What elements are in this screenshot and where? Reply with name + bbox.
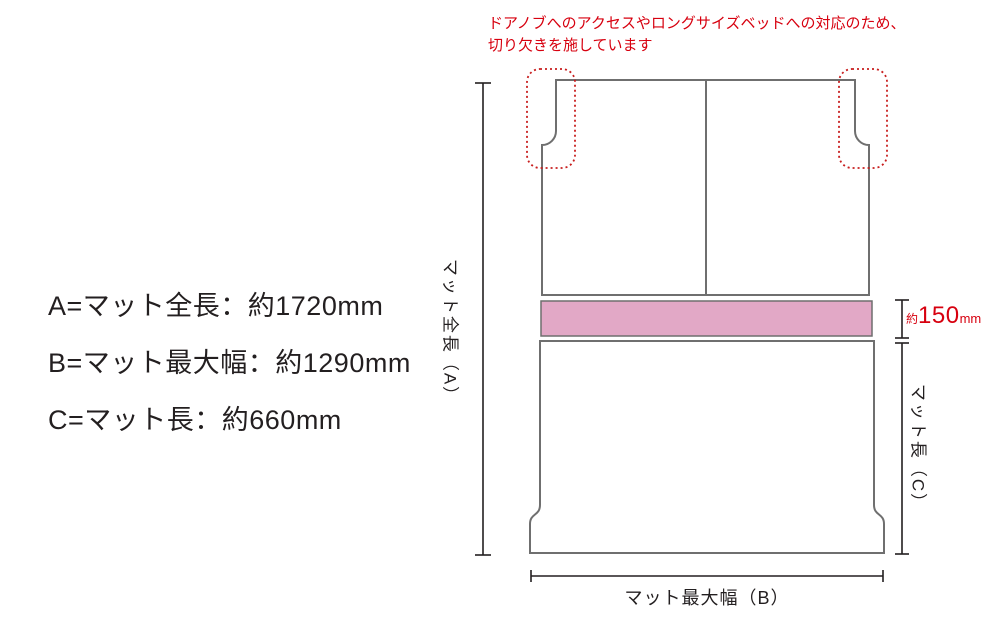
- label-total-length-a: マット全長（A）: [440, 259, 465, 405]
- gap-unit: mm: [960, 311, 982, 326]
- dimension-line-b: [531, 570, 883, 582]
- mat-bottom-section: [530, 341, 884, 553]
- mat-dimension-diagram: ドアノブへのアクセスやロングサイズベッドへの対応のため、 切り欠きを施しています…: [0, 0, 984, 633]
- mat-outline-drawing: [0, 0, 984, 633]
- gap-prefix: 約: [906, 310, 918, 327]
- dimension-line-a: [475, 83, 491, 555]
- label-mat-length-c: マット長（C）: [908, 384, 933, 512]
- gap-value: 150: [918, 302, 960, 330]
- label-max-width-b: マット最大幅（B）: [557, 584, 857, 610]
- label-gap-150mm: 約150mm: [906, 302, 981, 330]
- pink-gap-band: [541, 301, 872, 336]
